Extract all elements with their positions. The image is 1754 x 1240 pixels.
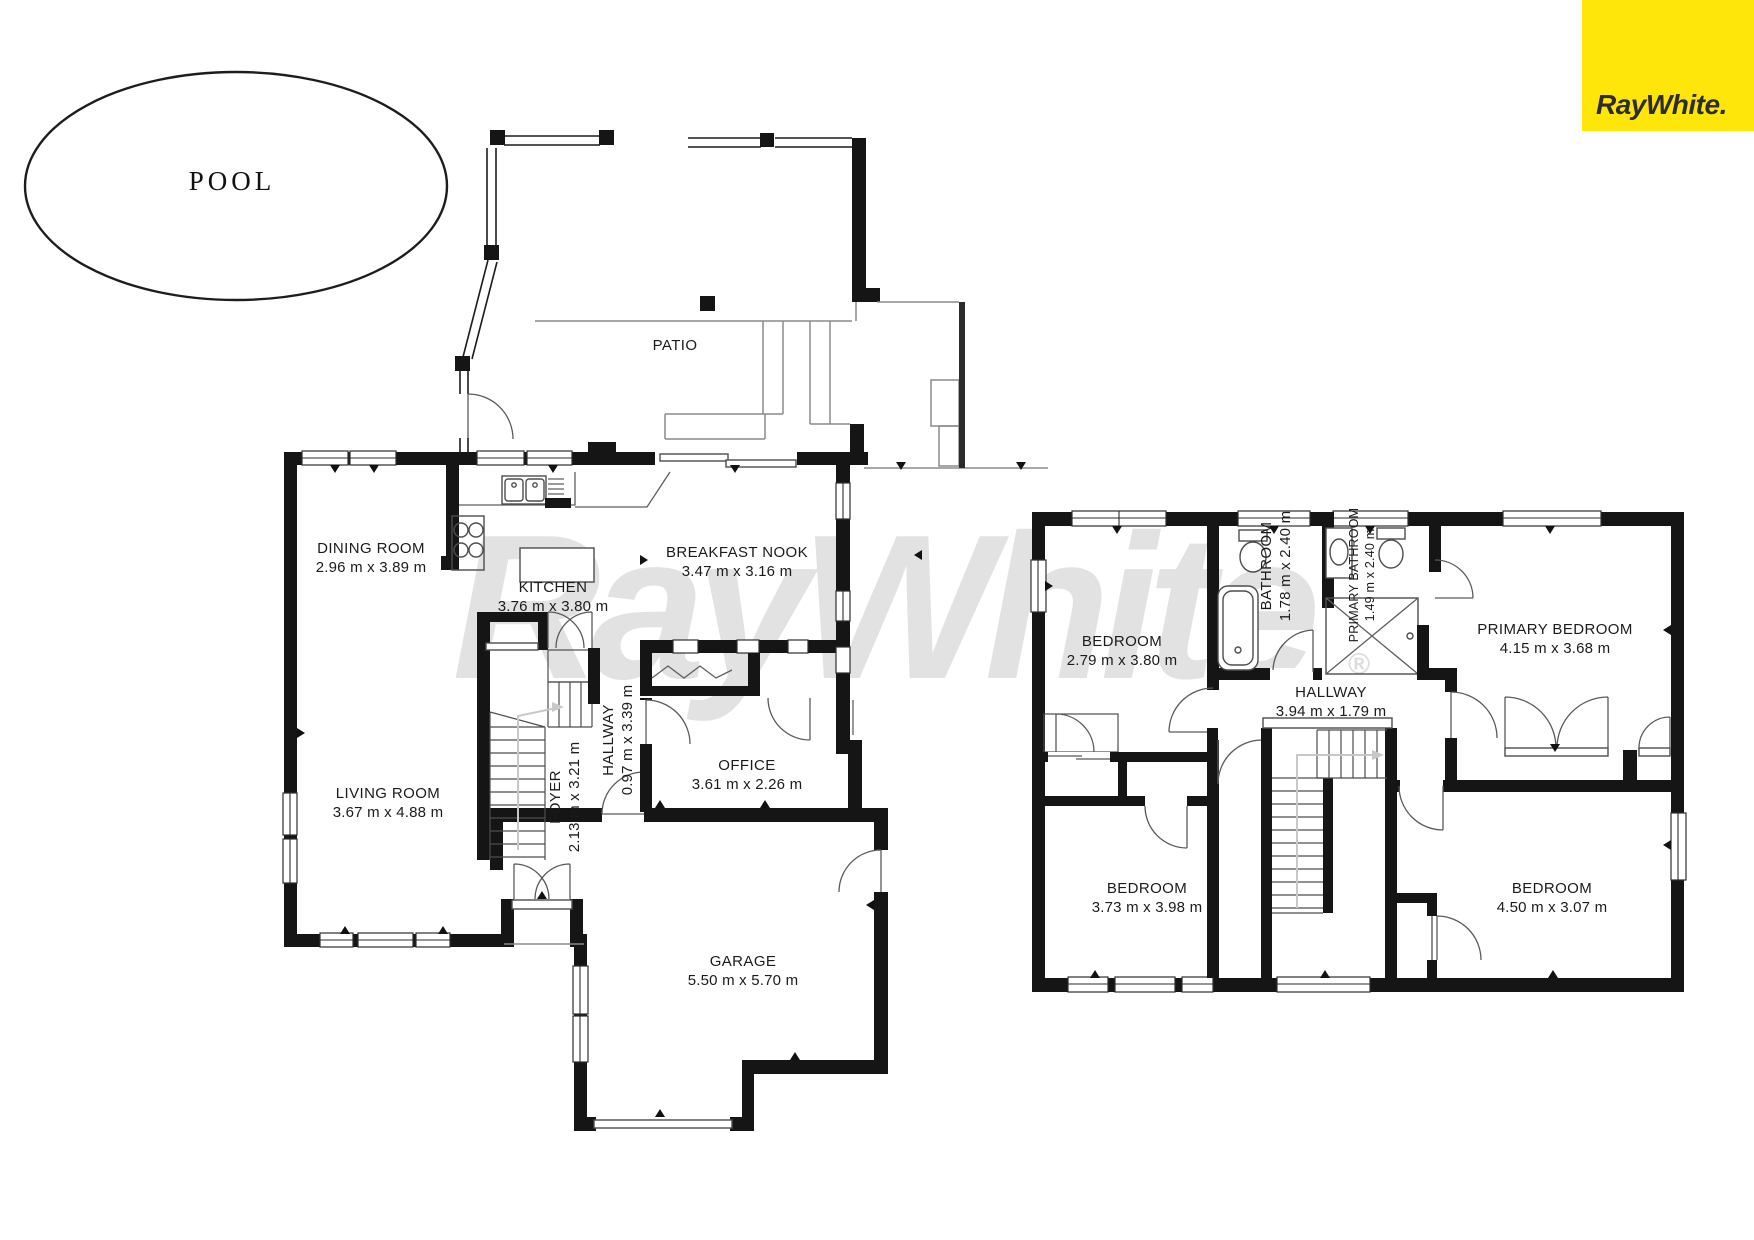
room-dims-bedroom-br: 4.50 m x 3.07 m	[1497, 899, 1608, 916]
room-dims-bedroom-tl: 2.79 m x 3.80 m	[1067, 652, 1178, 669]
room-dims-office: 3.61 m x 2.26 m	[692, 776, 803, 793]
room-dims-nook: 3.47 m x 3.16 m	[682, 563, 793, 580]
room-label-office: OFFICE	[718, 757, 775, 774]
ray-white-logo: RayWhite.	[1582, 0, 1754, 131]
closets-left	[1032, 714, 1219, 848]
room-label-garage: GARAGE	[710, 953, 777, 970]
closet-right	[1390, 893, 1481, 978]
room-label-foyer: FOYER	[547, 770, 564, 824]
room-label-primary-bathroom: PRIMARY BATHROOM	[1347, 508, 1361, 642]
room-label-living: LIVING ROOM	[336, 785, 440, 802]
patio-post	[700, 296, 715, 311]
chimney	[588, 442, 616, 452]
room-dims-kitchen: 3.76 m x 3.80 m	[498, 598, 609, 615]
patio-label: PATIO	[653, 337, 698, 354]
floorplan-page: RayWhite ® POOL RayWhite.	[0, 0, 1754, 1240]
room-dims-primary-bathroom: 1.49 m x 2.40 m	[1363, 529, 1377, 622]
toilet-icon	[1377, 528, 1405, 539]
room-label-hallway-u: HALLWAY	[1295, 684, 1367, 701]
logo-text: RayWhite.	[1596, 89, 1727, 120]
room-dims-bathroom: 1.78 m x 2.40 m	[1277, 511, 1294, 622]
primary-wardrobe	[1457, 697, 1684, 792]
room-label-bathroom: BATHROOM	[1258, 522, 1275, 611]
kitchen-island	[520, 548, 594, 582]
stairs-upper	[1261, 718, 1397, 978]
bathtub-icon	[1218, 586, 1258, 670]
pool: POOL	[25, 72, 447, 300]
patio-wall	[852, 138, 866, 302]
room-label-bedroom-bl: BEDROOM	[1107, 880, 1187, 897]
room-label-dining: DINING ROOM	[317, 540, 425, 557]
room-label-hallway-g: HALLWAY	[600, 704, 617, 776]
patio-area: PATIO	[455, 130, 1048, 470]
room-dims-bedroom-bl: 3.73 m x 3.98 m	[1092, 899, 1203, 916]
room-label-bedroom-tl: BEDROOM	[1082, 633, 1162, 650]
room-dims-foyer: 2.13 m x 3.21 m	[566, 742, 583, 853]
room-dims-living: 3.67 m x 4.88 m	[333, 804, 444, 821]
floorplan-image: RayWhite ® POOL RayWhite.	[0, 0, 1754, 1240]
room-dims-hallway-g: 0.97 m x 3.39 m	[619, 685, 636, 796]
room-dims-garage: 5.50 m x 5.70 m	[688, 972, 799, 989]
room-dims-dining: 2.96 m x 3.89 m	[316, 559, 427, 576]
fence	[455, 130, 852, 452]
room-label-primary-bedroom: PRIMARY BEDROOM	[1477, 621, 1632, 638]
pool-label: POOL	[189, 166, 276, 196]
room-label-bedroom-br: BEDROOM	[1512, 880, 1592, 897]
retaining-wall	[959, 302, 965, 468]
room-dims-primary-bedroom: 4.15 m x 3.68 m	[1500, 640, 1611, 657]
room-dims-hallway-u: 3.94 m x 1.79 m	[1276, 703, 1387, 720]
room-label-kitchen: KITCHEN	[519, 579, 588, 596]
room-label-nook: BREAKFAST NOOK	[666, 544, 808, 561]
